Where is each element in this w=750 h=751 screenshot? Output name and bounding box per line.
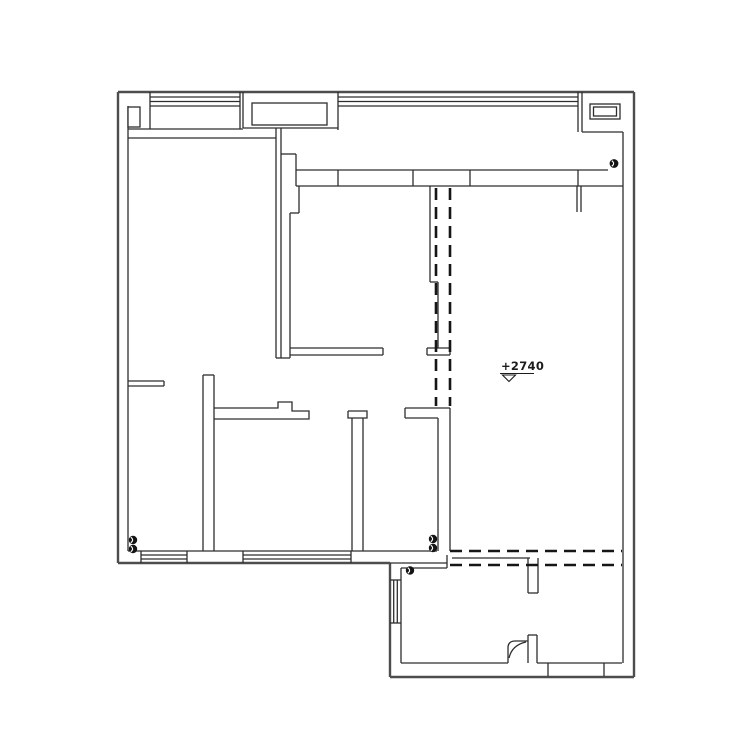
interior-walls-layer (128, 92, 623, 676)
floor-plan-page: +2740 (0, 0, 750, 751)
elevation-marker: +2740 (500, 359, 544, 382)
riser-symbols-layer (129, 159, 619, 575)
column-rect (128, 107, 140, 127)
outer-walls-layer (118, 92, 634, 677)
elevation-label: +2740 (501, 359, 544, 373)
dashed-walls-layer (436, 188, 622, 565)
wall-path (509, 642, 526, 658)
wall-path (214, 402, 309, 419)
column-rect (252, 103, 327, 125)
wall-path (348, 411, 367, 418)
floor-plan-canvas: +2740 (0, 0, 750, 751)
elevation-triangle-icon (503, 375, 516, 382)
column-rect (594, 107, 617, 116)
